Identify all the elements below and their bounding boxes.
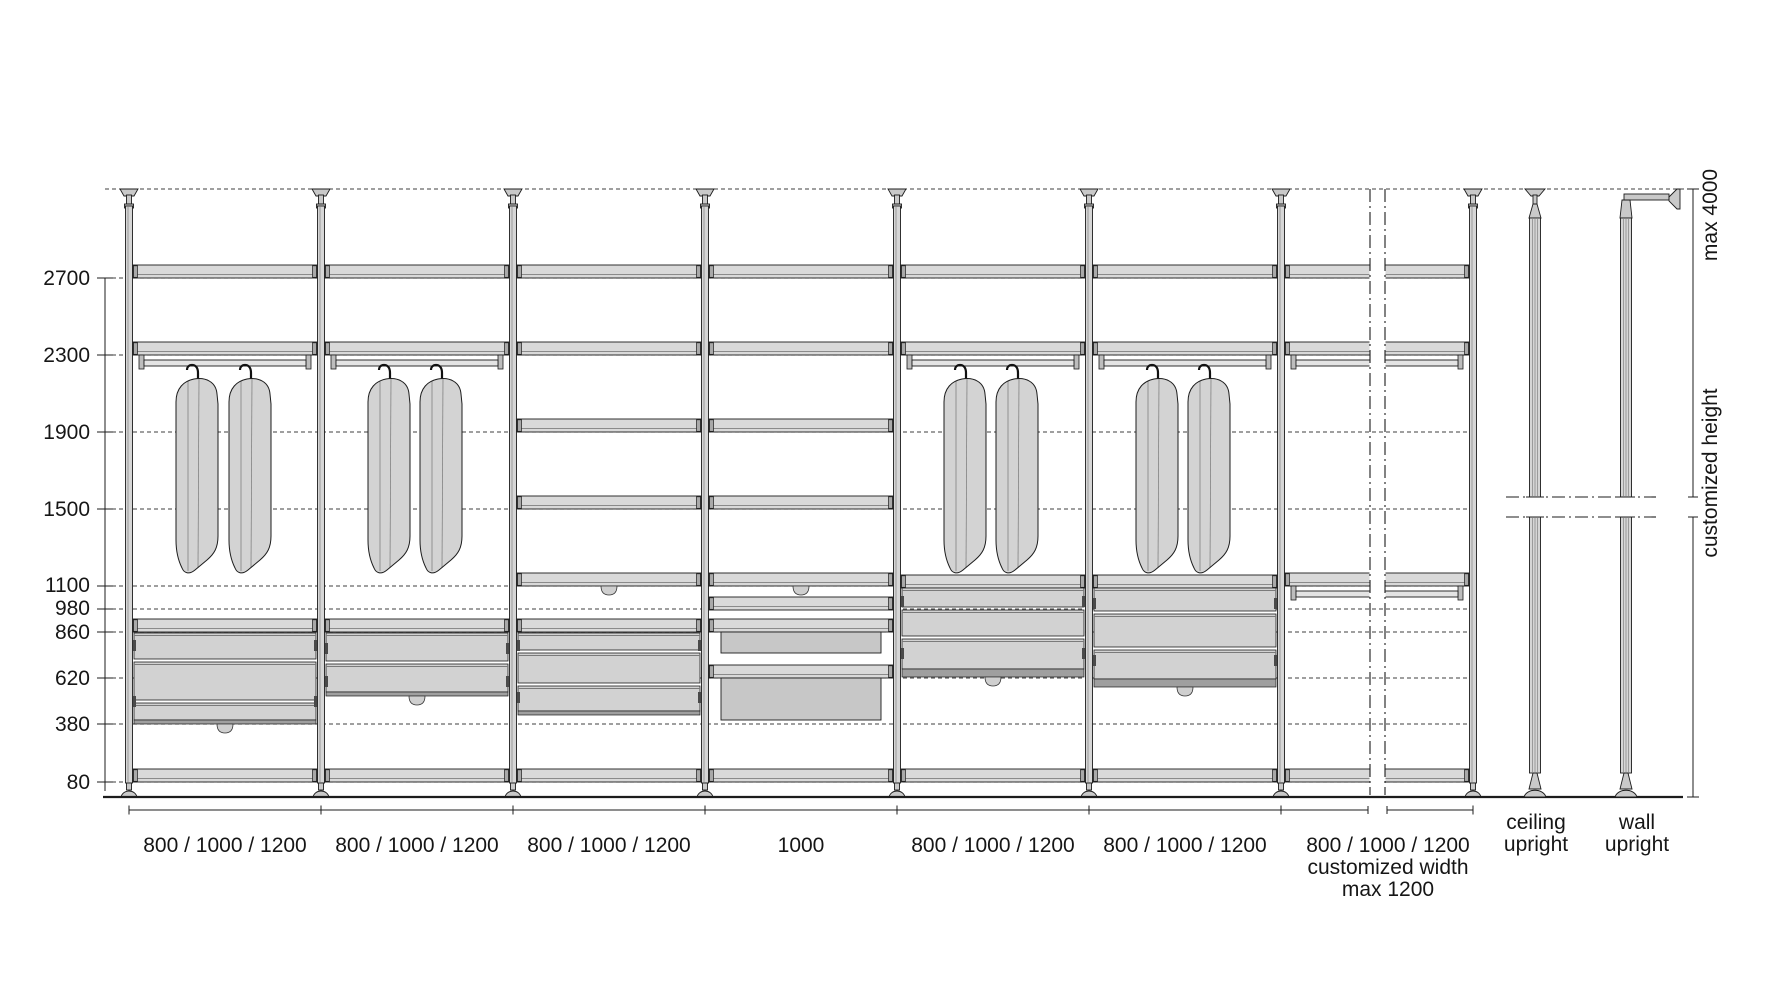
height-label-1900: 1900 [43,421,90,444]
bay-3 [517,265,701,782]
drawer-handle [217,724,233,733]
wall-upright-label-line1: wall [1618,811,1655,834]
bay-6 [1093,265,1277,782]
bay-1 [133,265,317,782]
garment-bags [176,365,271,573]
height-label-620: 620 [55,667,90,690]
bay-width-label-3: 800 / 1000 / 1200 [527,834,690,857]
wall-upright-label-line2: upright [1605,833,1669,856]
height-label-1100: 1100 [45,574,90,597]
pull-handle [793,586,809,595]
ceiling-upright-label-line1: ceiling [1506,811,1566,834]
height-label-860: 860 [55,621,90,644]
pullout-shelf [709,573,893,595]
right-height-dimension: max 4000 customized height [1687,169,1722,797]
pull-handle [601,586,617,595]
bay-width-label-2: 800 / 1000 / 1200 [335,834,498,857]
height-label-1500: 1500 [43,498,90,521]
customized-width-note: customized width [1307,856,1468,879]
drawer-unit-3 [517,619,701,715]
drawer-unit-2 [325,619,509,705]
bay-2 [325,265,509,782]
drawer-unit-3 [1093,575,1277,696]
legend: ceiling upright wall upright [1504,811,1669,856]
height-label-380: 380 [55,713,90,736]
bay-width-label-5: 800 / 1000 / 1200 [911,834,1074,857]
bay-4 [709,265,893,782]
drawer-unit-3 [901,575,1085,686]
shelf-with-hanging-tray [709,619,893,653]
height-label-980: 980 [55,597,90,620]
drawer-handle [1177,687,1193,696]
bay-7-customized [1285,189,1469,795]
left-height-dimension: 2700 2300 1900 1500 1100 980 860 620 380… [43,267,113,794]
max-height-label: max 4000 [1699,169,1722,261]
bay-width-label-1: 800 / 1000 / 1200 [143,834,306,857]
wardrobe-system-technical-diagram: 2700 2300 1900 1500 1100 980 860 620 380… [0,0,1778,1000]
upright-6 [1080,189,1098,797]
bay-width-label-4: 1000 [778,834,825,857]
height-break-marks [1506,497,1656,517]
bay-width-label-6: 800 / 1000 / 1200 [1103,834,1266,857]
upright-5 [888,189,906,797]
garment-bags [1136,365,1230,573]
wall-upright [1615,189,1680,797]
garment-bags [368,365,462,573]
ceiling-upright-label-line2: upright [1504,833,1568,856]
drawer-handle [985,677,1001,686]
garment-bags [944,365,1038,573]
height-label-80: 80 [67,771,90,794]
shelf-with-hanging-box [709,665,893,720]
bay-width-label-7: 800 / 1000 / 1200 [1306,834,1469,857]
height-label-2300: 2300 [43,344,90,367]
ceiling-upright [1524,189,1546,797]
upright-8 [1464,189,1482,797]
pullout-shelf [517,573,701,595]
bottom-width-dimension: 800 / 1000 / 1200 800 / 1000 / 1200 800 … [129,806,1473,902]
upright-7 [1272,189,1290,797]
diagram-canvas: 2700 2300 1900 1500 1100 980 860 620 380… [0,0,1778,1000]
drawer-handle [409,696,425,705]
bay-5 [901,265,1085,782]
drawer-unit-3 [133,619,317,733]
max-width-note: max 1200 [1342,878,1434,901]
height-label-2700: 2700 [43,267,90,290]
customized-height-label: customized height [1699,388,1722,557]
